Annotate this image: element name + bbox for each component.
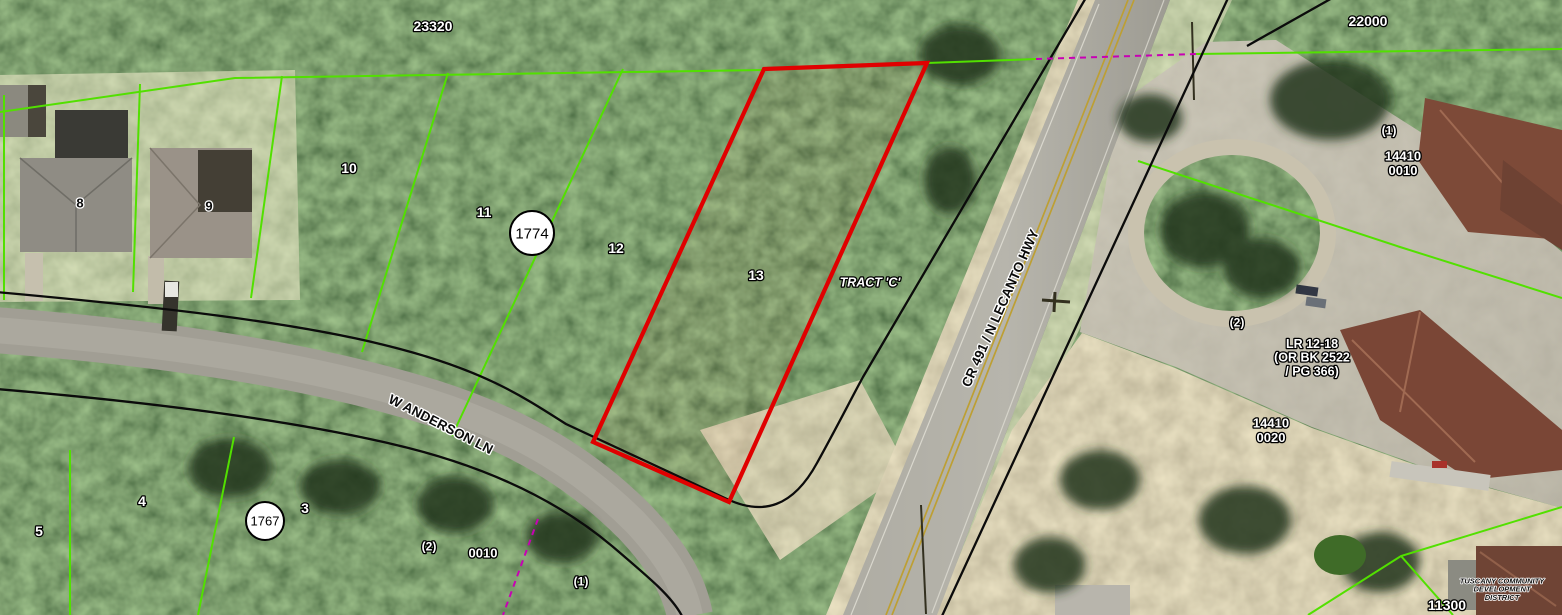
svg-text:8: 8 xyxy=(76,196,83,211)
map-label-lot-11: 11 xyxy=(477,204,492,220)
svg-text:1774: 1774 xyxy=(515,225,548,242)
svg-text:11: 11 xyxy=(477,204,492,220)
bush xyxy=(1314,535,1366,575)
map-label-plat-11300: 11300 xyxy=(1428,597,1466,613)
building-lot9 xyxy=(150,148,252,258)
map-label-parcel-14410-0020: 144100020 xyxy=(1253,416,1289,445)
map-label-parcel-14410-0010: 144100010 xyxy=(1385,149,1421,178)
map-label-plat-22000: 22000 xyxy=(1349,13,1388,29)
svg-text:9: 9 xyxy=(205,199,212,214)
map-label-ref-1-s: (1) xyxy=(574,574,589,588)
map-label-lot-5: 5 xyxy=(35,523,43,539)
map-label-lot-10: 10 xyxy=(341,160,357,176)
svg-text:11300: 11300 xyxy=(1428,597,1466,613)
map-label-lot-8: 8 xyxy=(76,196,83,211)
map-label-marker-1767: 1767 xyxy=(246,502,284,540)
svg-text:13: 13 xyxy=(748,267,764,283)
map-label-lot-13: 13 xyxy=(748,267,764,283)
map-label-lot-12: 12 xyxy=(608,240,624,256)
svg-text:TRACT 'C': TRACT 'C' xyxy=(840,276,902,290)
svg-text:144100010: 144100010 xyxy=(1385,149,1421,178)
map-label-marker-1774: 1774 xyxy=(510,211,554,255)
svg-text:(1): (1) xyxy=(574,574,589,588)
map-label-ref-1-ne: (1) xyxy=(1382,123,1397,137)
map-label-parcel-0010: 0010 xyxy=(469,546,498,561)
svg-text:144100020: 144100020 xyxy=(1253,416,1289,445)
svg-text:(2): (2) xyxy=(422,539,437,553)
map-label-lot-3: 3 xyxy=(301,500,309,516)
map-viewport[interactable]: CR 491 / N LECANTO HWY xyxy=(0,0,1562,615)
map-label-plat-23320: 23320 xyxy=(414,18,453,34)
svg-text:(2): (2) xyxy=(1230,315,1245,329)
map-label-ref-2-e: (2) xyxy=(1230,315,1245,329)
svg-text:(1): (1) xyxy=(1382,123,1397,137)
svg-text:5: 5 xyxy=(35,523,43,539)
svg-text:22000: 22000 xyxy=(1349,13,1388,29)
svg-text:23320: 23320 xyxy=(414,18,453,34)
map-label-ref-2-s: (2) xyxy=(422,539,437,553)
svg-text:1767: 1767 xyxy=(251,514,280,529)
map-label-tract-c: TRACT 'C' xyxy=(840,276,902,290)
map-label-lot-4: 4 xyxy=(138,493,146,509)
svg-text:3: 3 xyxy=(301,500,309,516)
svg-text:10: 10 xyxy=(341,160,357,176)
svg-text:4: 4 xyxy=(138,493,146,509)
svg-text:12: 12 xyxy=(608,240,624,256)
svg-text:0010: 0010 xyxy=(469,546,498,561)
map-label-lot-9: 9 xyxy=(205,199,212,214)
map-canvas[interactable]: CR 491 / N LECANTO HWY xyxy=(0,0,1562,615)
